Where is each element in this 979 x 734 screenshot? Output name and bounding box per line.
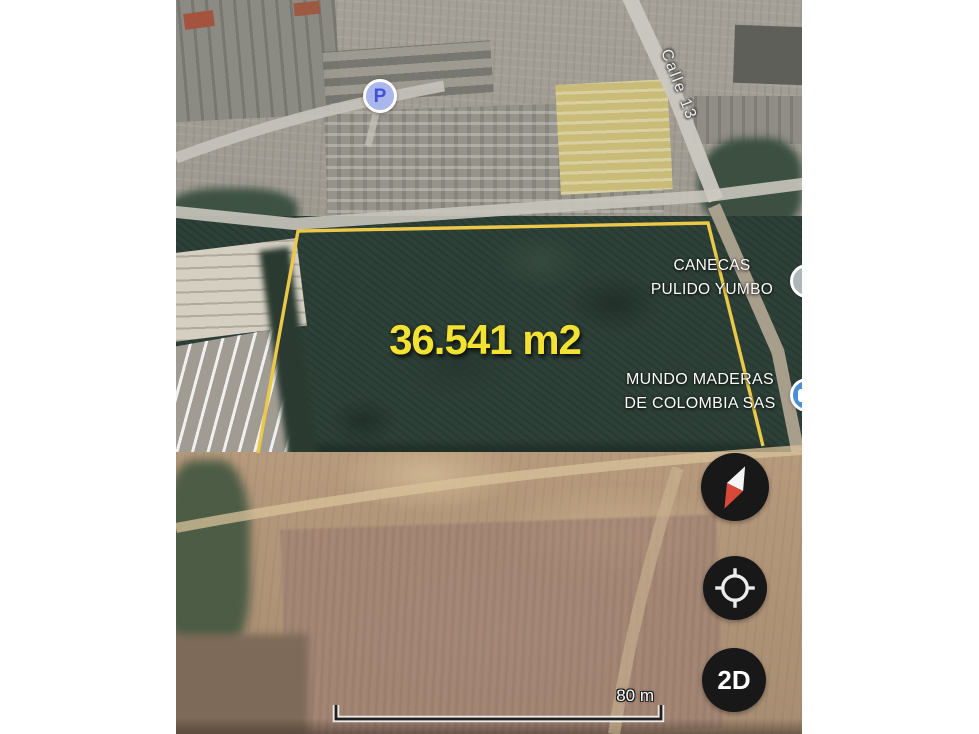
terrain-patch	[293, 1, 320, 17]
my-location-button[interactable]	[703, 556, 767, 620]
poi-marker-glyph	[798, 389, 802, 402]
app-window: Calle 13 P 36.541 m2 CANECAS PULIDO YUMB…	[0, 0, 979, 734]
terrain-patch	[322, 40, 493, 104]
terrain-patch	[280, 514, 723, 734]
terrain-patch	[555, 79, 673, 195]
poi-label-line: MUNDO MADERAS	[580, 368, 802, 392]
parcel-area-label: 36.541 m2	[335, 316, 635, 364]
compass-button[interactable]	[701, 453, 769, 521]
terrain-patch	[733, 25, 802, 85]
parking-poi-marker[interactable]: P	[363, 79, 397, 113]
terrain-patch	[176, 460, 250, 656]
poi-label-line: DE COLOMBIA SAS	[580, 392, 802, 416]
view-2d-button[interactable]: 2D	[702, 648, 766, 712]
terrain-patch	[694, 96, 802, 144]
poi-label-line: PULIDO YUMBO	[607, 278, 802, 302]
parking-icon: P	[374, 87, 387, 106]
my-location-icon	[703, 556, 767, 620]
poi-label-line: CANECAS	[607, 254, 802, 278]
satellite-map[interactable]: Calle 13 P 36.541 m2 CANECAS PULIDO YUMB…	[176, 0, 802, 734]
compass-icon	[701, 453, 769, 521]
terrain-patch	[176, 718, 802, 734]
terrain-industrial-zone	[176, 0, 802, 234]
scale-bar-label: 80 m	[514, 686, 654, 706]
poi-label-mundo-maderas[interactable]: MUNDO MADERAS DE COLOMBIA SAS	[580, 368, 802, 416]
poi-label-canecas[interactable]: CANECAS PULIDO YUMBO	[607, 254, 802, 302]
